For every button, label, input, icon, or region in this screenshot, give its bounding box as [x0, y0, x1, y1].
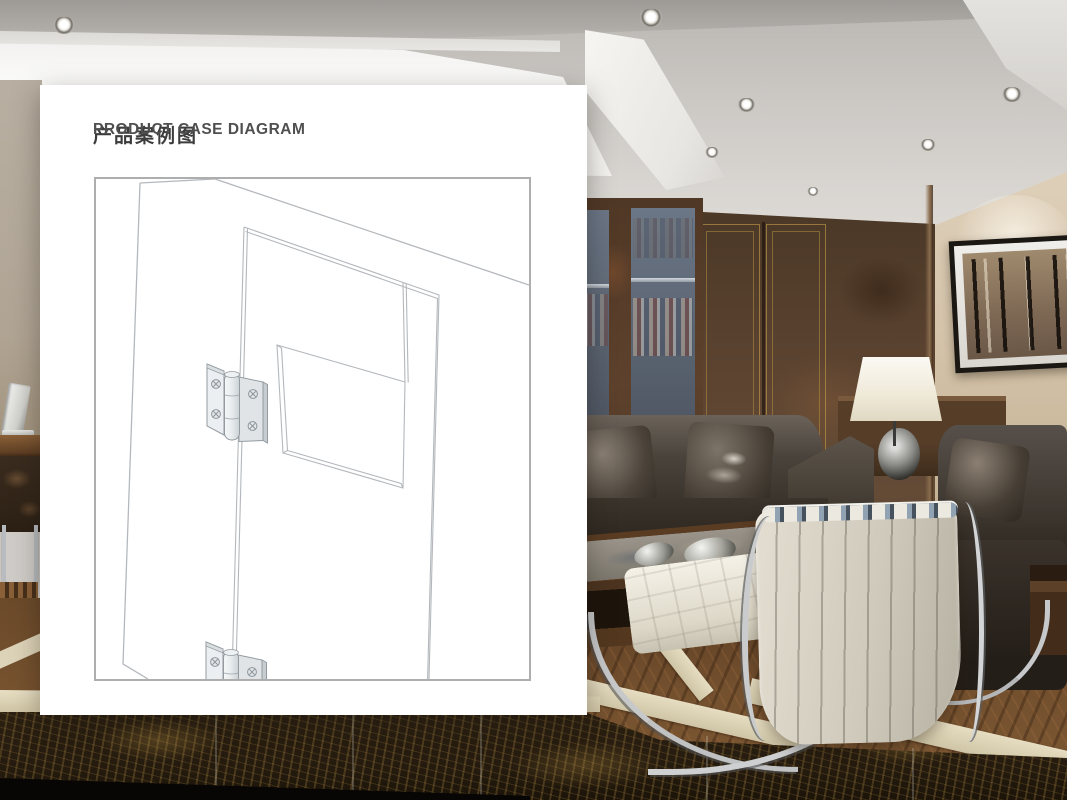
- book-spines: [584, 294, 608, 346]
- marble-seam: [352, 712, 354, 800]
- door-outline: [232, 227, 439, 679]
- recessed-light: [807, 187, 819, 196]
- product-card: 产品案例图 PRODUCT CASE DIAGRAM: [40, 85, 587, 715]
- book-spines: [633, 298, 693, 356]
- framed-artwork: [949, 235, 1067, 374]
- barcelona-chair-chrome-frame: [942, 502, 984, 742]
- table-lamp-shade: [850, 357, 942, 421]
- title-english: PRODUCT CASE DIAGRAM: [93, 121, 305, 139]
- diagram-frame: [94, 177, 531, 681]
- lamp-stem: [893, 420, 896, 446]
- door-recessed-panel: [277, 345, 405, 488]
- product-showcase-image: 产品案例图 PRODUCT CASE DIAGRAM: [0, 0, 1067, 800]
- barcelona-chair-chrome-frame: [742, 516, 802, 741]
- lamp-base: [878, 428, 920, 480]
- artwork-abstract-bars: [963, 255, 1067, 354]
- page-title: 产品案例图 PRODUCT CASE DIAGRAM: [93, 121, 573, 147]
- recessed-light: [920, 139, 936, 151]
- recessed-light: [737, 98, 756, 112]
- recessed-light: [1001, 87, 1023, 102]
- marble-seam: [480, 712, 482, 800]
- top-hinge: [207, 364, 268, 443]
- recessed-light: [705, 147, 719, 158]
- book-spines: [633, 218, 693, 258]
- artwork-canvas: [962, 248, 1067, 359]
- marble-seam: [912, 748, 914, 800]
- recessed-light: [638, 9, 664, 27]
- door-hinge-line-drawing: [96, 179, 529, 679]
- wall-panel-lines: [123, 179, 529, 679]
- bookcase-shelf: [631, 278, 695, 282]
- recessed-light: [52, 17, 76, 34]
- desk-top: [0, 435, 42, 457]
- desk-marble-front: [0, 456, 42, 532]
- chair-wood-slats: [0, 582, 38, 598]
